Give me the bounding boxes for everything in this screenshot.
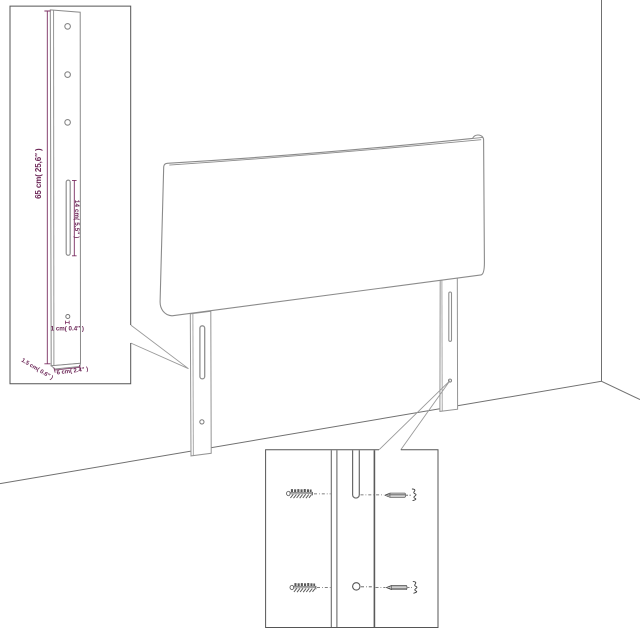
svg-text:14 cm( 5,5″ ): 14 cm( 5,5″ ) (73, 200, 80, 239)
svg-text:65 cm( 25,6″ ): 65 cm( 25,6″ ) (34, 148, 43, 199)
svg-text:1 cm( 0.4″ ): 1 cm( 0.4″ ) (51, 326, 84, 333)
